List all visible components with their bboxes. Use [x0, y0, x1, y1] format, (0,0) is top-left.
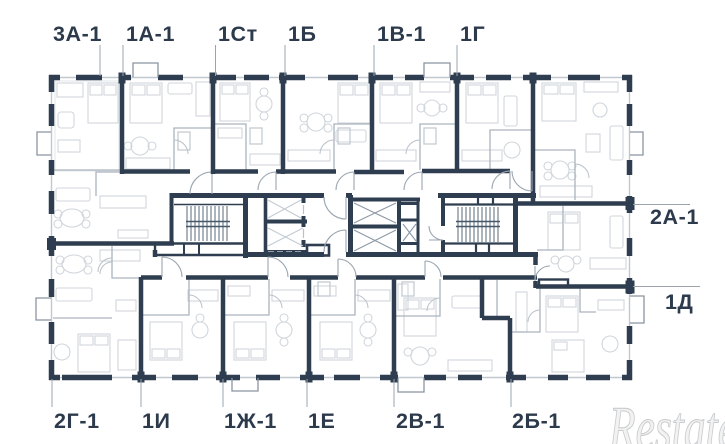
svg-text:Restate: Restate — [608, 395, 725, 444]
svg-text:1В-1: 1В-1 — [377, 22, 426, 46]
svg-text:1И: 1И — [142, 409, 171, 433]
svg-text:1Б: 1Б — [288, 22, 317, 46]
svg-text:1Е: 1Е — [308, 409, 336, 433]
svg-text:1Ст: 1Ст — [218, 22, 258, 46]
svg-text:1Г: 1Г — [460, 22, 485, 46]
svg-text:2А-1: 2А-1 — [650, 205, 699, 229]
svg-text:1Д: 1Д — [665, 290, 693, 314]
svg-text:2Б-1: 2Б-1 — [512, 409, 561, 433]
svg-text:2В-1: 2В-1 — [396, 409, 445, 433]
svg-text:1А-1: 1А-1 — [126, 22, 175, 46]
svg-text:2Г-1: 2Г-1 — [54, 409, 100, 433]
svg-text:3А-1: 3А-1 — [53, 22, 102, 46]
svg-text:1Ж-1: 1Ж-1 — [224, 409, 277, 433]
